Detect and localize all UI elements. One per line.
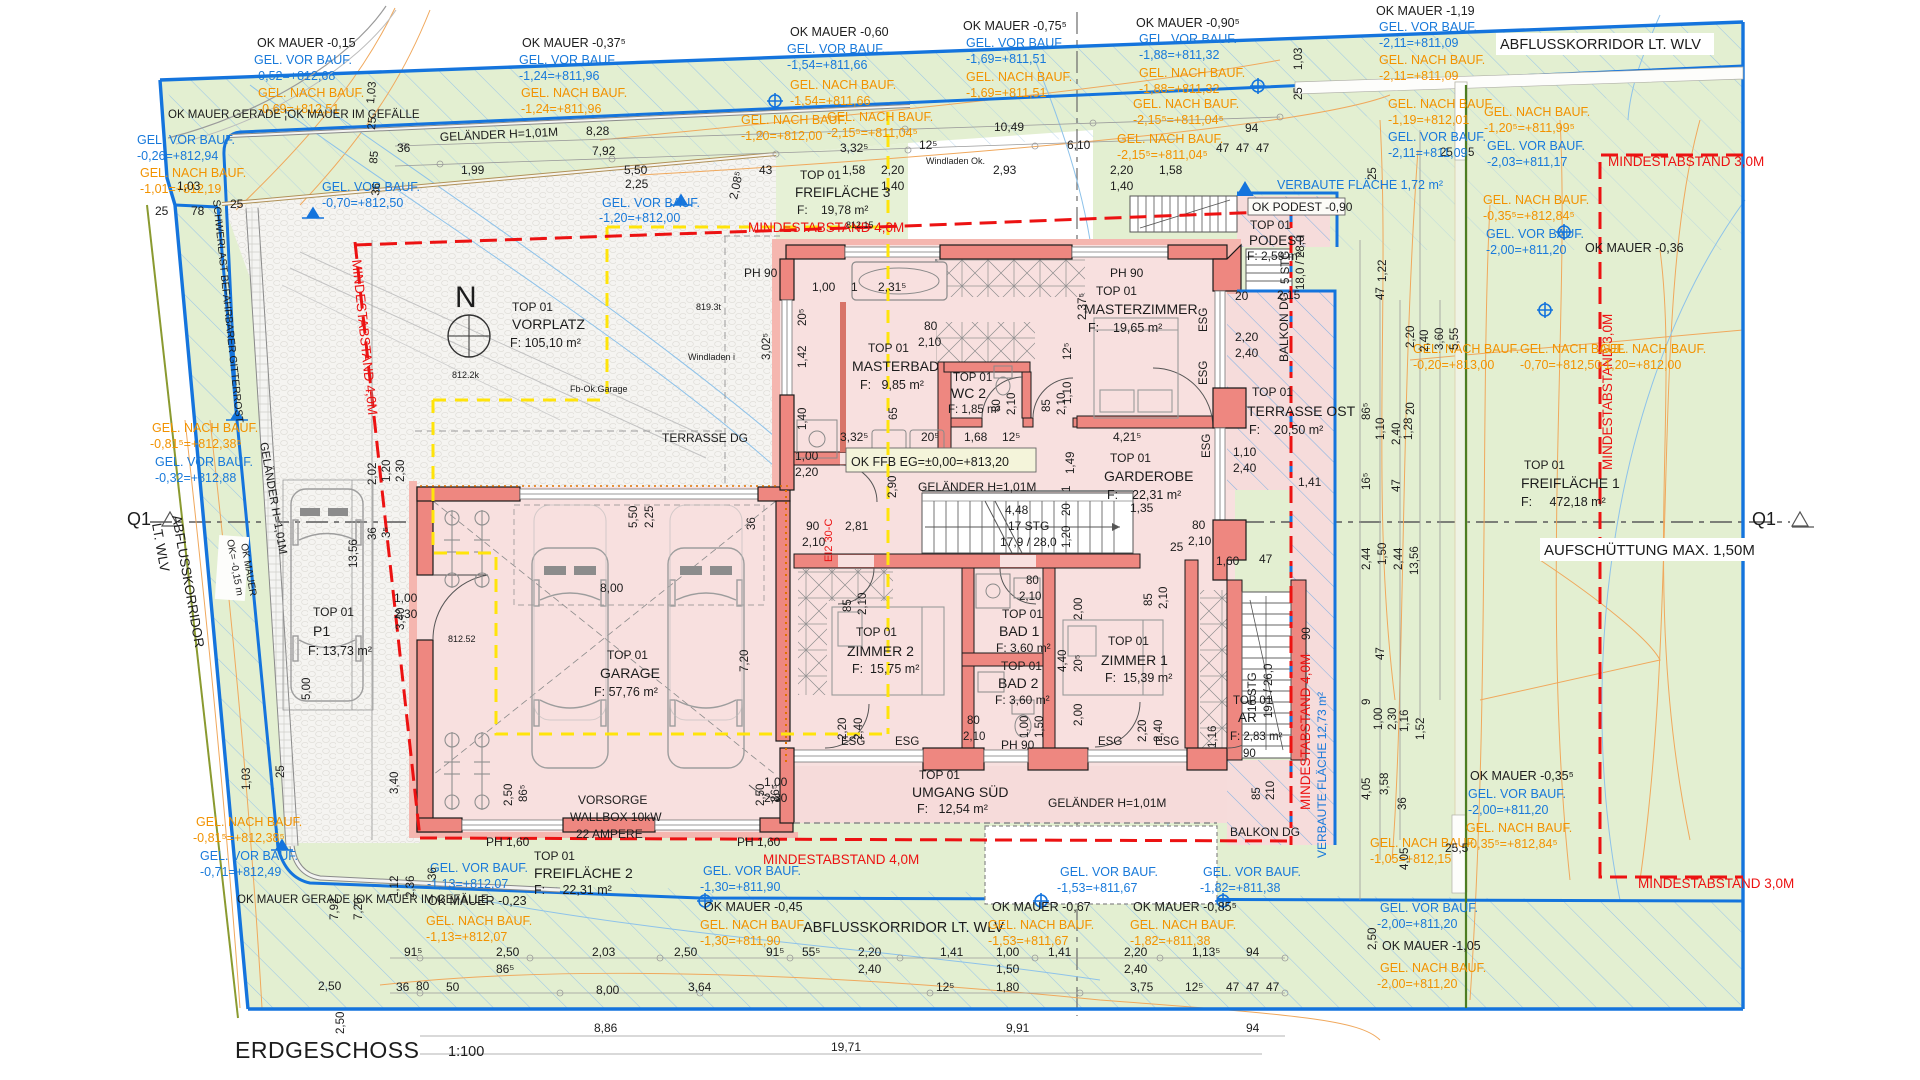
svg-text:-1,20⁵=+811,99⁵: -1,20⁵=+811,99⁵ [1484,121,1575,135]
svg-text:GEL. NACH BAUF.: GEL. NACH BAUF. [152,421,258,435]
svg-text:GEL. VOR BAUF.: GEL. VOR BAUF. [1380,901,1478,915]
svg-text:F: 3,60 m²: F: 3,60 m² [996,641,1051,655]
svg-text:2,10: 2,10 [1158,587,1170,609]
svg-text:TOP 01: TOP 01 [868,341,909,355]
svg-text:TOP 01: TOP 01 [1001,659,1042,673]
svg-text:12⁵: 12⁵ [936,980,954,994]
svg-text:-2,15⁵=+811,04⁵: -2,15⁵=+811,04⁵ [827,126,918,140]
svg-text:210: 210 [1265,781,1277,800]
svg-text:Fb-Ok.Garage: Fb-Ok.Garage [570,384,628,394]
svg-text:-2,15⁵=+811,04⁵: -2,15⁵=+811,04⁵ [1133,113,1224,127]
svg-text:1,00: 1,00 [795,449,819,463]
svg-text:85: 85 [1251,787,1263,800]
svg-text:OK MAUER -0,75⁵: OK MAUER -0,75⁵ [963,19,1067,33]
svg-text:7,92: 7,92 [592,144,616,158]
svg-text:GEL. VOR BAUF.: GEL. VOR BAUF. [254,53,352,67]
svg-text:-1,24=+811,96: -1,24=+811,96 [521,102,601,116]
svg-text:GEL. NACH BAUF.: GEL. NACH BAUF. [426,914,532,928]
svg-text:1,50: 1,50 [996,962,1020,976]
svg-text:91⁵: 91⁵ [766,945,784,959]
svg-text:ABFLUSSKORRIDOR LT. WLV: ABFLUSSKORRIDOR LT. WLV [1500,37,1701,53]
svg-text:GEL. VOR BAUF.: GEL. VOR BAUF. [1486,227,1584,241]
svg-text:2,37⁵: 2,37⁵ [1077,293,1089,320]
svg-text:7,92: 7,92 [329,898,341,920]
svg-text:2,20: 2,20 [1124,945,1148,959]
svg-text:F: 9,85 m²: F: 9,85 m² [860,378,924,392]
svg-text:2,50: 2,50 [674,945,698,959]
svg-text:25: 25 [230,197,244,211]
svg-text:-0,70=+812,50: -0,70=+812,50 [322,196,403,210]
svg-text:2,40: 2,40 [1419,330,1431,352]
svg-text:1: 1 [1061,486,1073,492]
svg-text:-0,71=+812,49: -0,71=+812,49 [200,865,281,879]
svg-text:94: 94 [1246,1021,1260,1035]
svg-text:2,50: 2,50 [755,784,767,806]
svg-text:1,49: 1,49 [1065,452,1077,474]
svg-text:GEL. VOR BAUF.: GEL. VOR BAUF. [519,53,617,67]
svg-text:TERRASSE DG: TERRASSE DG [662,431,748,445]
svg-text:80: 80 [924,319,938,333]
svg-text:-0,32=+812,88: -0,32=+812,88 [155,471,236,485]
svg-text:PH 1,60: PH 1,60 [737,835,781,849]
svg-text:4,05: 4,05 [1361,778,1373,800]
svg-text:Windladen i: Windladen i [688,352,735,362]
svg-text:MASTERZIMMER: MASTERZIMMER [1084,301,1198,317]
svg-text:1: 1 [851,280,858,294]
svg-text:47: 47 [1246,980,1260,994]
svg-text:25: 25 [366,116,379,130]
svg-text:25: 25 [155,204,169,218]
svg-text:-1,30=+811,90: -1,30=+811,90 [700,880,780,894]
svg-text:3,64: 3,64 [688,980,712,994]
svg-text:1,41: 1,41 [1048,945,1072,959]
svg-text:1,40: 1,40 [881,179,905,193]
svg-text:Windladen Ok.: Windladen Ok. [926,156,985,166]
svg-text:20⁵: 20⁵ [1073,654,1085,672]
svg-text:1,13⁵: 1,13⁵ [1192,945,1220,959]
svg-text:-1,13=+812,07: -1,13=+812,07 [426,930,507,944]
svg-text:Q1: Q1 [127,509,151,529]
svg-text:18,0 / 28,0: 18,0 / 28,0 [1295,236,1307,290]
svg-text:F: 20,50 m²: F: 20,50 m² [1249,423,1323,437]
svg-text:GEL. VOR BAUF.: GEL. VOR BAUF. [1468,787,1566,801]
svg-text:10,49: 10,49 [994,120,1024,134]
svg-text:GEL. NACH BAUF.: GEL. NACH BAUF. [1139,66,1245,80]
svg-text:ESG: ESG [1198,361,1210,385]
svg-text:F: 19,78 m²: F: 19,78 m² [797,203,868,217]
svg-text:-1,13=+812,07: -1,13=+812,07 [427,877,508,891]
svg-text:2,50: 2,50 [318,979,342,993]
svg-text:TOP 01: TOP 01 [1002,607,1043,621]
svg-text:GEL. NACH BAUF.: GEL. NACH BAUF. [790,78,896,92]
svg-text:36: 36 [397,141,411,155]
svg-text:TOP 01: TOP 01 [1096,284,1137,298]
svg-text:1,03: 1,03 [365,81,379,104]
svg-text:ZIMMER 1: ZIMMER 1 [1101,652,1168,668]
svg-text:2,10: 2,10 [1006,393,1018,415]
svg-text:2,31⁵: 2,31⁵ [878,280,906,294]
svg-text:TOP 01: TOP 01 [512,300,553,314]
svg-text:TOP 01: TOP 01 [534,849,575,863]
svg-text:GEL. NACH BAUF.: GEL. NACH BAUF. [966,70,1072,84]
svg-text:47: 47 [1391,479,1403,492]
svg-text:2,20: 2,20 [858,945,882,959]
svg-text:EI2 30-C: EI2 30-C [823,519,835,562]
svg-text:ESG: ESG [1201,434,1213,458]
svg-text:2,40: 2,40 [1124,962,1148,976]
svg-text:UMGANG SÜD: UMGANG SÜD [912,783,1008,800]
svg-text:36: 36 [396,980,410,994]
svg-text:F: 15,39 m²: F: 15,39 m² [1105,671,1172,685]
svg-text:2,25: 2,25 [625,177,649,191]
svg-text:1,50: 1,50 [1377,543,1389,565]
svg-text:5 STG: 5 STG [1280,251,1292,284]
svg-text:GEL. NACH BAUF.: GEL. NACH BAUF. [1379,53,1485,67]
svg-text:-1,24=+811,96: -1,24=+811,96 [519,69,599,83]
svg-text:-0,70=+812,50: -0,70=+812,50 [1520,358,1601,372]
svg-text:BALKON DG: BALKON DG [1277,292,1291,362]
svg-text:OK PODEST -0,90: OK PODEST -0,90 [1252,200,1353,214]
svg-text:2,36: 2,36 [405,876,417,898]
svg-text:812.15: 812.15 [846,220,874,230]
svg-text:2,50: 2,50 [1367,928,1379,950]
svg-text:47: 47 [1259,552,1273,566]
svg-text:GEL. VOR BAUF.: GEL. VOR BAUF. [155,455,253,469]
svg-text:OK MAUER GERADE ¦OK MAUER IM G: OK MAUER GERADE ¦OK MAUER IM GEFÄLLE [168,109,420,121]
svg-text:1,41: 1,41 [1298,475,1322,489]
svg-text:GEL. NACH BAUF.: GEL. NACH BAUF. [1388,97,1494,111]
svg-text:85: 85 [1041,399,1053,412]
svg-text:2,40: 2,40 [1391,423,1403,445]
svg-text:8,00: 8,00 [596,983,620,997]
svg-text:47: 47 [1375,647,1387,660]
svg-text:1:100: 1:100 [448,1044,484,1060]
svg-text:-1,69=+811,51: -1,69=+811,51 [966,52,1046,66]
svg-text:5,50: 5,50 [624,163,648,177]
svg-text:MINDESTABSTAND 3,0M: MINDESTABSTAND 3,0M [1600,314,1615,470]
svg-text:36: 36 [1397,797,1409,810]
svg-text:85: 85 [842,599,854,612]
svg-text:FREIFLÄCHE 3: FREIFLÄCHE 3 [795,185,890,200]
svg-text:MINDESTABSTAND 3,0M: MINDESTABSTAND 3,0M [1638,876,1794,891]
svg-text:2,20: 2,20 [1110,163,1134,177]
svg-text:GEL. NACH BAUF.: GEL. NACH BAUF. [988,918,1094,932]
svg-text:1,52: 1,52 [1415,718,1427,740]
svg-text:1,58: 1,58 [842,163,866,177]
svg-text:2,20: 2,20 [1405,326,1417,348]
svg-text:2,81: 2,81 [845,519,869,533]
svg-text:TOP 01: TOP 01 [607,648,648,662]
svg-text:F: 19,65 m²: F: 19,65 m² [1088,321,1162,335]
svg-text:MASTERBAD: MASTERBAD [852,358,939,374]
svg-text:12⁵: 12⁵ [1002,430,1020,444]
svg-text:20: 20 [1405,402,1417,415]
svg-text:5: 5 [1468,147,1474,159]
svg-text:GEL. NACH BAUF.: GEL. NACH BAUF. [1483,193,1589,207]
svg-text:VERBAUTE FLÄCHE 1,72 m²: VERBAUTE FLÄCHE 1,72 m² [1277,178,1443,192]
svg-text:GEL. VOR BAUF.: GEL. VOR BAUF. [1060,865,1158,879]
svg-text:94: 94 [1245,121,1259,135]
svg-text:2,00: 2,00 [1073,704,1085,726]
svg-text:-1,20=+812,00: -1,20=+812,00 [599,211,680,225]
svg-text:OK MAUER -0,85⁵: OK MAUER -0,85⁵ [1133,900,1237,914]
svg-text:19,71: 19,71 [831,1040,861,1054]
svg-text:1,16: 1,16 [1207,726,1219,748]
svg-text:2,30: 2,30 [395,460,407,482]
svg-text:-0,20=+813,00: -0,20=+813,00 [1413,358,1494,372]
svg-text:OK MAUER -0,23: OK MAUER -0,23 [428,894,527,908]
svg-text:-1,88=+811,32: -1,88=+811,32 [1139,48,1219,62]
svg-text:47: 47 [1256,141,1270,155]
svg-text:-2,00=+811,20: -2,00=+811,20 [1377,917,1457,931]
svg-text:17,9 / 28,0: 17,9 / 28,0 [1000,535,1057,549]
svg-text:1,16: 1,16 [1399,710,1411,732]
svg-text:3⁵: 3⁵ [381,527,393,538]
svg-text:90: 90 [806,519,820,533]
svg-text:PH 90: PH 90 [744,266,778,280]
svg-text:1,00: 1,00 [1373,708,1385,730]
svg-text:-1,53=+811,67: -1,53=+811,67 [1057,881,1137,895]
svg-text:-2,00=+811,20: -2,00=+811,20 [1468,803,1548,817]
svg-text:4,21⁵: 4,21⁵ [1113,430,1141,444]
svg-text:5,55: 5,55 [1449,328,1461,350]
svg-text:2,25: 2,25 [644,506,656,528]
svg-text:TOP 01: TOP 01 [919,768,960,782]
svg-text:OK MAUER -0,60: OK MAUER -0,60 [790,25,889,39]
svg-text:ERDGESCHOSS: ERDGESCHOSS [235,1037,419,1063]
svg-text:16 STG: 16 STG [1247,672,1259,712]
svg-text:N: N [455,281,477,314]
svg-text:GARDEROBE: GARDEROBE [1104,468,1193,484]
svg-text:TOP 01: TOP 01 [800,168,841,182]
svg-text:1,50: 1,50 [1034,716,1046,738]
svg-text:2,40: 2,40 [1153,720,1165,742]
svg-text:9,91: 9,91 [1006,1021,1030,1035]
svg-text:2,10: 2,10 [1019,591,1041,603]
svg-text:6,10: 6,10 [1067,138,1091,152]
svg-text:4,48: 4,48 [1005,503,1029,517]
svg-text:F: 105,10 m²: F: 105,10 m² [510,336,581,350]
svg-text:-0,52=+812,68: -0,52=+812,68 [254,69,335,83]
svg-text:F: 2,83 m²: F: 2,83 m² [1230,731,1283,743]
svg-text:2,50: 2,50 [496,945,520,959]
svg-text:GEL. VOR BAUF.: GEL. VOR BAUF. [1487,139,1585,153]
svg-text:TOP 01: TOP 01 [856,625,897,639]
svg-text:GEL. NACH BAUF.: GEL. NACH BAUF. [1484,105,1590,119]
svg-text:-2,03=+811,17: -2,03=+811,17 [1487,155,1567,169]
svg-text:-2,15⁵=+811,04⁵: -2,15⁵=+811,04⁵ [1117,148,1208,162]
svg-text:86⁵: 86⁵ [1361,402,1373,420]
svg-text:3,32⁵: 3,32⁵ [840,141,868,155]
svg-text:3,32⁵: 3,32⁵ [840,430,868,444]
svg-text:20: 20 [1235,289,1249,303]
svg-text:F: 22,31 m²: F: 22,31 m² [534,883,612,897]
svg-text:2,10: 2,10 [857,593,869,615]
svg-text:OK MAUER -0,15: OK MAUER -0,15 [257,36,356,50]
svg-text:2,40: 2,40 [853,718,865,740]
svg-text:1,40: 1,40 [797,408,809,430]
svg-text:1,10: 1,10 [1062,382,1074,404]
svg-text:94: 94 [1246,945,1260,959]
svg-text:GEL. VOR BAUF.: GEL. VOR BAUF. [966,36,1064,50]
svg-text:20⁵: 20⁵ [921,430,939,444]
svg-text:-1,20=+812,00: -1,20=+812,00 [741,129,822,143]
svg-text:GEL. NACH BAUF.: GEL. NACH BAUF. [196,815,302,829]
svg-text:1,00: 1,00 [996,945,1020,959]
svg-text:GEL. NACH BAUF.: GEL. NACH BAUF. [1380,961,1486,975]
svg-text:819.3t: 819.3t [696,302,722,312]
svg-text:ABFLUSSKORRIDOR LT. WLV: ABFLUSSKORRIDOR LT. WLV [803,920,1004,936]
svg-text:MINDESTABSTAND 4,0M: MINDESTABSTAND 4,0M [748,220,904,235]
svg-text:VORPLATZ: VORPLATZ [512,316,585,332]
svg-text:-2,00=+811,20: -2,00=+811,20 [1486,243,1566,257]
svg-text:OK MAUER -0,35⁵: OK MAUER -0,35⁵ [1470,769,1574,783]
svg-text:7,20: 7,20 [739,650,751,672]
svg-text:2,44: 2,44 [1393,547,1405,570]
svg-text:3,75: 3,75 [1130,980,1154,994]
svg-text:47: 47 [1236,141,1250,155]
svg-text:-1,19=+812,01: -1,19=+812,01 [1388,113,1469,127]
svg-text:F: 15,75 m²: F: 15,75 m² [852,662,919,676]
svg-text:47: 47 [1375,287,1387,300]
svg-text:MINDESTABSTAND 4,0M: MINDESTABSTAND 4,0M [1298,654,1313,810]
svg-text:2,10: 2,10 [1188,534,1212,548]
svg-text:TERRASSE OST: TERRASSE OST [1247,403,1356,419]
svg-text:F: 2,59 m²: F: 2,59 m² [1247,249,1302,263]
svg-text:78: 78 [191,204,205,218]
svg-text:65: 65 [888,407,900,420]
svg-text:25: 25 [275,765,287,778]
svg-text:25: 25 [1170,540,1184,554]
svg-text:-0,81⁵=+812,38⁵: -0,81⁵=+812,38⁵ [150,437,242,451]
svg-text:25: 25 [1293,87,1305,100]
svg-text:8,86: 8,86 [594,1021,618,1035]
svg-text:17 STG: 17 STG [1008,519,1049,533]
svg-text:GEL. NACH BAUF.: GEL. NACH BAUF. [521,86,627,100]
svg-text:-1,54=+811,66: -1,54=+811,66 [790,94,870,108]
svg-text:80: 80 [1026,575,1039,587]
svg-text:86⁵: 86⁵ [496,962,514,976]
svg-text:2,44: 2,44 [1361,547,1373,570]
svg-text:PH 1,60: PH 1,60 [486,835,530,849]
svg-text:1,03: 1,03 [1293,48,1305,70]
svg-text:43: 43 [759,163,773,177]
svg-text:GEL. NACH BAUF.: GEL. NACH BAUF. [1117,132,1223,146]
svg-text:-1,69=+811,51: -1,69=+811,51 [966,86,1046,100]
svg-text:GEL. NACH BAUF.: GEL. NACH BAUF. [1133,97,1239,111]
svg-text:BALKON DG: BALKON DG [1230,825,1300,839]
svg-text:-2,00=+811,20: -2,00=+811,20 [1377,977,1457,991]
svg-text:OK MAUER -0,90⁵: OK MAUER -0,90⁵ [1136,16,1240,30]
svg-text:F: 12,54 m²: F: 12,54 m² [917,802,988,816]
svg-text:2,10: 2,10 [963,731,985,743]
svg-text:GEL. NACH BAUF.: GEL. NACH BAUF. [258,86,364,100]
svg-text:2,20: 2,20 [1137,720,1149,742]
svg-text:GEL. NACH BAUF.: GEL. NACH BAUF. [827,110,933,124]
svg-text:47: 47 [1226,980,1240,994]
svg-text:2,40: 2,40 [1235,346,1259,360]
svg-text:1,28: 1,28 [1403,418,1415,440]
svg-text:GEL. VOR BAUF.: GEL. VOR BAUF. [787,42,885,56]
svg-text:OK MAUER -0,37⁵: OK MAUER -0,37⁵ [522,36,626,50]
svg-text:1,35: 1,35 [1130,501,1154,515]
svg-text:36: 36 [370,182,383,196]
svg-text:1,00: 1,00 [1019,716,1031,738]
svg-text:36: 36 [367,527,379,540]
svg-text:812.2k: 812.2k [452,370,480,380]
svg-text:PH 90: PH 90 [1001,738,1035,752]
svg-text:80: 80 [1192,518,1206,532]
svg-text:5,50: 5,50 [628,506,640,528]
svg-text:3,40: 3,40 [395,608,407,630]
svg-text:-0,26=+812,94: -0,26=+812,94 [137,149,218,163]
svg-text:-1,82=+811,38: -1,82=+811,38 [1200,881,1280,895]
svg-text:-1,88=+811,32: -1,88=+811,32 [1139,82,1219,96]
svg-text:Q1: Q1 [1752,509,1776,529]
svg-text:36: 36 [427,867,439,880]
svg-text:F: 22,31 m²: F: 22,31 m² [1107,488,1181,502]
svg-text:1,40: 1,40 [1110,179,1134,193]
svg-text:1,20: 1,20 [1061,526,1073,548]
svg-text:19,1 / 26,0: 19,1 / 26,0 [1263,664,1275,718]
svg-text:2,30: 2,30 [1387,708,1399,730]
svg-text:OK FFB EG=±0,00=+813,20: OK FFB EG=±0,00=+813,20 [851,455,1009,469]
svg-text:8,00: 8,00 [600,581,624,595]
svg-text:12⁵: 12⁵ [1062,342,1074,360]
svg-text:-2,11=+811,09: -2,11=+811,09 [1388,146,1468,160]
svg-text:1,60: 1,60 [1216,554,1240,568]
svg-text:2,20: 2,20 [837,718,849,740]
svg-text:FREIFLÄCHE 1: FREIFLÄCHE 1 [1521,475,1620,491]
svg-text:2,20: 2,20 [795,465,819,479]
svg-text:ESG: ESG [895,736,919,748]
svg-text:-0,35⁵=+812,84⁵: -0,35⁵=+812,84⁵ [1466,837,1558,851]
svg-text:GEL. NACH BAUF.: GEL. NACH BAUF. [1130,918,1236,932]
svg-text:TOP 01: TOP 01 [953,372,992,384]
svg-text:2,40: 2,40 [858,962,882,976]
svg-text:VORSORGE: VORSORGE [578,793,647,807]
svg-text:22 AMPERE: 22 AMPERE [576,827,643,841]
svg-text:2,02: 2,02 [367,463,379,485]
svg-text:P1: P1 [313,623,330,639]
svg-text:GEL. NACH BAUF.: GEL. NACH BAUF. [140,166,246,180]
svg-text:GELÄNDER H=1,01M: GELÄNDER H=1,01M [918,480,1036,494]
svg-text:90: 90 [1243,748,1256,760]
svg-text:1,80: 1,80 [996,980,1020,994]
svg-text:2,50: 2,50 [335,1012,347,1034]
svg-text:F: 13,73 m²: F: 13,73 m² [308,644,372,658]
svg-text:OK MAUER -0,45: OK MAUER -0,45 [704,900,803,914]
svg-text:OK MAUER -0,36: OK MAUER -0,36 [1585,241,1684,255]
svg-text:-0,81⁵=+812,38⁵: -0,81⁵=+812,38⁵ [193,831,285,845]
svg-text:85: 85 [368,150,381,164]
svg-text:ESG: ESG [1198,308,1210,332]
svg-text:GEL. VOR BAUF.: GEL. VOR BAUF. [1139,32,1237,46]
svg-text:90: 90 [1301,627,1313,640]
svg-text:1,00: 1,00 [394,591,418,605]
svg-text:VERBAUTE FLÄCHE 12,73 m²: VERBAUTE FLÄCHE 12,73 m² [1315,692,1329,858]
svg-text:2,20: 2,20 [881,163,905,177]
svg-text:GEL. VOR BAUF.: GEL. VOR BAUF. [200,849,298,863]
svg-text:25,5: 25,5 [1445,841,1469,855]
svg-text:WC 2: WC 2 [951,385,986,401]
svg-text:1,00: 1,00 [812,280,836,294]
svg-text:1,41: 1,41 [940,945,964,959]
svg-text:TOP 01: TOP 01 [1250,218,1291,232]
svg-text:2,20: 2,20 [1235,330,1259,344]
svg-text:GEL. NACH BAUF.: GEL. NACH BAUF. [1600,342,1706,356]
svg-text:ZIMMER 2: ZIMMER 2 [847,643,914,659]
